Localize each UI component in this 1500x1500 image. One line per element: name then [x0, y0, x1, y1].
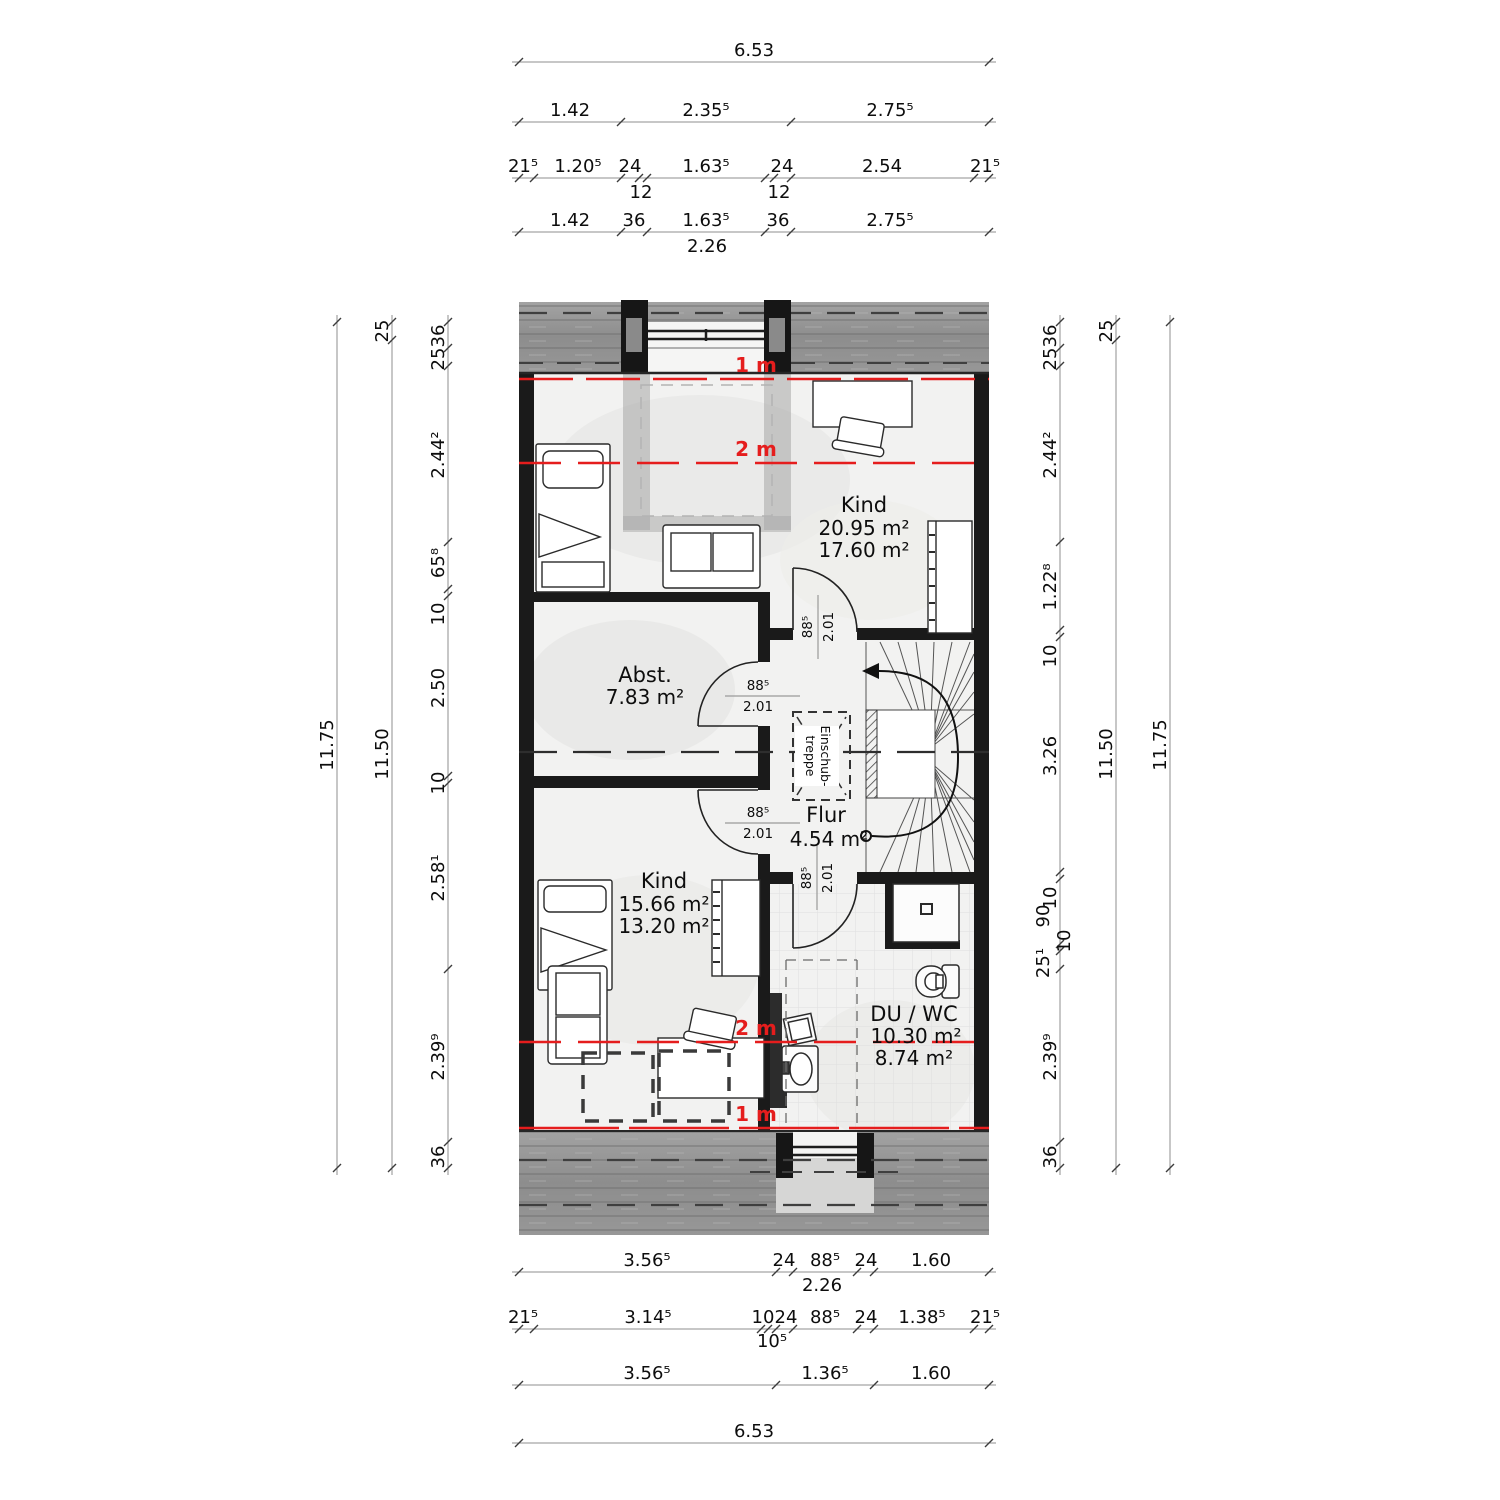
svg-text:11.75: 11.75 — [1150, 719, 1171, 771]
svg-text:1.60: 1.60 — [911, 1363, 951, 1384]
svg-text:2.39⁹: 2.39⁹ — [1040, 1033, 1061, 1080]
svg-text:3.14⁵: 3.14⁵ — [624, 1307, 671, 1328]
svg-text:36: 36 — [1040, 325, 1061, 348]
wall-abst-south — [534, 776, 758, 788]
wall-corridor-upper — [758, 592, 770, 662]
room-area2-du-wc: 8.74 m² — [875, 1046, 953, 1070]
svg-text:10: 10 — [1040, 645, 1061, 668]
wall-flur-north-west — [770, 628, 793, 640]
svg-text:88⁵: 88⁵ — [747, 805, 770, 821]
wall-shower-side — [885, 884, 893, 944]
wardrobe-bottom — [712, 880, 760, 976]
svg-text:24: 24 — [775, 1307, 798, 1328]
wall-exterior-right — [974, 366, 989, 1132]
svg-text:2.50: 2.50 — [428, 668, 449, 708]
shower — [893, 884, 959, 942]
svg-text:36: 36 — [623, 210, 646, 231]
svg-text:90: 90 — [1033, 905, 1054, 928]
svg-text:3.56⁵: 3.56⁵ — [623, 1250, 670, 1271]
svg-text:1.60: 1.60 — [911, 1250, 951, 1271]
svg-text:2.35⁵: 2.35⁵ — [682, 100, 729, 121]
svg-text:11.75: 11.75 — [317, 719, 338, 771]
height-label-1m-bottom: 1 m — [735, 1102, 777, 1126]
svg-text:10: 10 — [1054, 930, 1075, 953]
loveseat — [663, 525, 760, 588]
wall-abst-north — [534, 592, 770, 602]
svg-text:25: 25 — [372, 320, 393, 343]
svg-text:25: 25 — [1096, 320, 1117, 343]
washbasin — [782, 1046, 818, 1092]
svg-text:1.38⁵: 1.38⁵ — [898, 1307, 945, 1328]
svg-text:36: 36 — [767, 210, 790, 231]
wall-exterior-left — [519, 366, 534, 1132]
svg-text:12: 12 — [630, 182, 653, 203]
svg-text:1.22⁸: 1.22⁸ — [1040, 563, 1061, 610]
svg-text:36: 36 — [1040, 1146, 1061, 1169]
svg-text:1.20⁵: 1.20⁵ — [554, 156, 601, 177]
svg-text:2.44²: 2.44² — [428, 431, 449, 478]
svg-text:24: 24 — [771, 156, 794, 177]
svg-text:2.58¹: 2.58¹ — [428, 854, 449, 901]
svg-text:2.75⁵: 2.75⁵ — [866, 210, 913, 231]
svg-text:88⁵: 88⁵ — [799, 867, 815, 890]
stair-spine-wall — [866, 710, 877, 798]
svg-text:1.42: 1.42 — [550, 100, 590, 121]
svg-text:36: 36 — [428, 325, 449, 348]
svg-text:11.50: 11.50 — [1096, 728, 1117, 780]
svg-text:65⁸: 65⁸ — [428, 548, 449, 578]
wall-corridor-middle — [758, 726, 770, 790]
toilet — [916, 965, 959, 998]
svg-text:88⁵: 88⁵ — [800, 616, 816, 639]
svg-text:1.42: 1.42 — [550, 210, 590, 231]
svg-text:1.63⁵: 1.63⁵ — [682, 210, 729, 231]
svg-text:2.75⁵: 2.75⁵ — [866, 100, 913, 121]
svg-text:12: 12 — [768, 182, 791, 203]
svg-text:21⁵: 21⁵ — [508, 156, 538, 177]
dimension-block-right: 36 25 2.44² 1.22⁸ 10 3.26 10 90 10 25¹ 2… — [1033, 315, 1174, 1175]
svg-text:24: 24 — [855, 1250, 878, 1271]
svg-text:6.53: 6.53 — [734, 1421, 774, 1442]
room-name-du-wc: DU / WC — [870, 1002, 957, 1026]
height-label-2m-top: 2 m — [735, 437, 777, 461]
height-label-2m-bottom: 2 m — [735, 1016, 777, 1040]
armchair — [548, 966, 607, 1064]
wall-bath-north-west — [758, 872, 793, 884]
svg-text:10: 10 — [428, 603, 449, 626]
svg-text:25: 25 — [1040, 348, 1061, 371]
wardrobe-top — [928, 521, 972, 633]
svg-text:2.39⁹: 2.39⁹ — [428, 1033, 449, 1080]
room-area-flur: 4.54 m² — [790, 827, 868, 851]
room-area1-du-wc: 10.30 m² — [870, 1024, 961, 1048]
svg-text:88⁵: 88⁵ — [747, 678, 770, 694]
room-area2-kind-bottom: 13.20 m² — [618, 914, 709, 938]
svg-text:10: 10 — [428, 772, 449, 795]
svg-text:3.56⁵: 3.56⁵ — [623, 1363, 670, 1384]
svg-text:10: 10 — [752, 1307, 775, 1328]
svg-text:25¹: 25¹ — [1033, 948, 1054, 978]
svg-text:36: 36 — [428, 1146, 449, 1169]
floor-plan-page: Einschub- treppe 1 m 2 m 2 m 1 m Kind 20… — [0, 0, 1500, 1500]
dimension-block-left: 11.75 25 11.50 36 25 2.44² 65⁸ 10 2.50 1… — [317, 315, 452, 1175]
room-area2-kind-top: 17.60 m² — [818, 538, 909, 562]
svg-text:2.01: 2.01 — [821, 612, 837, 642]
svg-text:6.53: 6.53 — [734, 40, 774, 61]
svg-text:2.01: 2.01 — [743, 826, 773, 842]
roof-band-bottom — [519, 1130, 989, 1235]
svg-text:88⁵: 88⁵ — [810, 1307, 840, 1328]
svg-text:1.36⁵: 1.36⁵ — [801, 1363, 848, 1384]
svg-text:21⁵: 21⁵ — [970, 1307, 1000, 1328]
svg-text:2.26: 2.26 — [687, 236, 727, 257]
svg-text:21⁵: 21⁵ — [970, 156, 1000, 177]
pillow — [544, 886, 606, 912]
pillow — [543, 451, 603, 488]
svg-text:3.26: 3.26 — [1040, 736, 1061, 776]
svg-text:2.01: 2.01 — [820, 863, 836, 893]
svg-text:10⁵: 10⁵ — [757, 1331, 787, 1352]
dimension-block-bottom: 3.56⁵ 24 88⁵ 24 1.60 2.26 21⁵ 3.14⁵ 10 2… — [508, 1250, 1000, 1447]
room-name-flur: Flur — [806, 803, 846, 827]
svg-text:2.54: 2.54 — [862, 156, 902, 177]
room-name-abst: Abst. — [618, 663, 672, 687]
svg-text:2.44²: 2.44² — [1040, 431, 1061, 478]
dimension-block-top: 6.53 1.42 2.35⁵ 2.75⁵ 21⁵ 1.20⁵ 24 1.63⁵… — [508, 40, 1000, 257]
svg-text:11.50: 11.50 — [372, 728, 393, 780]
svg-text:24: 24 — [855, 1307, 878, 1328]
svg-text:1.63⁵: 1.63⁵ — [682, 156, 729, 177]
room-area-abst: 7.83 m² — [606, 685, 684, 709]
room-area1-kind-top: 20.95 m² — [818, 516, 909, 540]
loft-ladder-label-2: treppe — [803, 735, 818, 776]
svg-text:2.01: 2.01 — [743, 699, 773, 715]
wall-bath-north-east — [857, 872, 974, 884]
svg-text:24: 24 — [619, 156, 642, 177]
svg-text:24: 24 — [773, 1250, 796, 1271]
floor-plan-drawing: Einschub- treppe 1 m 2 m 2 m 1 m Kind 20… — [0, 0, 1500, 1500]
svg-text:25: 25 — [428, 348, 449, 371]
room-name-kind-bottom: Kind — [641, 869, 687, 893]
room-name-kind-top: Kind — [841, 493, 887, 517]
height-label-1m-top: 1 m — [735, 353, 777, 377]
loft-ladder-label-1: Einschub- — [818, 726, 833, 787]
svg-text:21⁵: 21⁵ — [508, 1307, 538, 1328]
stair-landing — [877, 710, 935, 798]
room-area1-kind-bottom: 15.66 m² — [618, 892, 709, 916]
bed-top — [536, 444, 610, 592]
svg-text:2.26: 2.26 — [802, 1275, 842, 1296]
svg-text:88⁵: 88⁵ — [810, 1250, 840, 1271]
